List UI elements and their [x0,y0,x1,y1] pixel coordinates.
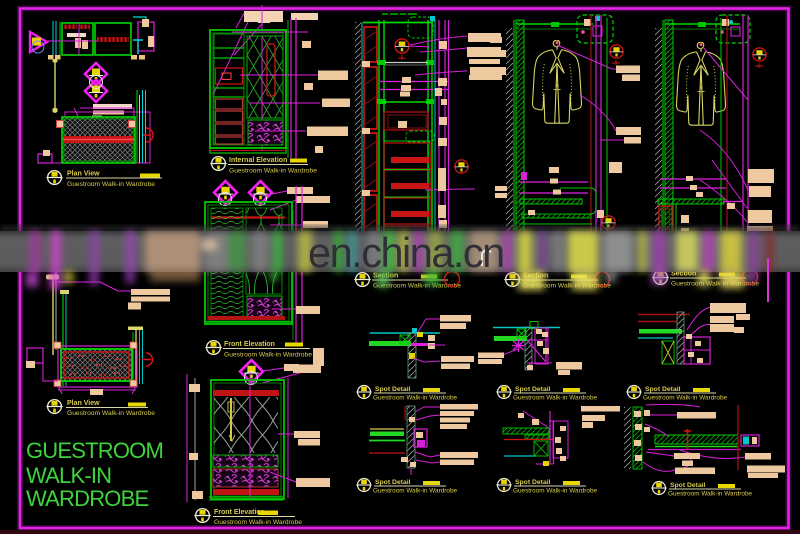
svg-text:GUESTROOM: GUESTROOM [26,438,163,463]
svg-text:Spot Detail: Spot Detail [515,386,551,393]
svg-text:WARDROBE: WARDROBE [26,486,148,511]
svg-text:Guestroom Walk-in Wardrobe: Guestroom Walk-in Wardrobe [214,519,302,526]
svg-text:en.china.cn: en.china.cn [308,229,504,276]
svg-text:Spot Detail: Spot Detail [375,479,411,486]
svg-text:Front Elevation: Front Elevation [214,509,265,516]
svg-text:Internal Elevation: Internal Elevation [229,157,287,164]
svg-text:Guestroom Walk-in Wardrobe: Guestroom Walk-in Wardrobe [668,491,752,498]
svg-text:Guestroom Walk-in Wardrobe: Guestroom Walk-in Wardrobe [224,352,312,359]
svg-text:Guestroom Walk-in Wardrobe: Guestroom Walk-in Wardrobe [67,181,155,188]
svg-text:Guestroom Walk-in Wardrobe: Guestroom Walk-in Wardrobe [373,488,457,495]
svg-text:Guestroom Walk-in Wardrobe: Guestroom Walk-in Wardrobe [513,395,597,402]
svg-text:Spot Detail: Spot Detail [375,386,411,393]
svg-text:Plan View: Plan View [67,400,100,407]
svg-text:Guestroom Walk-in Wardrobe: Guestroom Walk-in Wardrobe [373,395,457,402]
svg-text:Spot Detail: Spot Detail [515,479,551,486]
svg-text:Spot Detail: Spot Detail [670,482,706,489]
svg-text:Guestroom Walk-in Wardrobe: Guestroom Walk-in Wardrobe [67,410,155,417]
svg-text:Front Elevation: Front Elevation [224,341,275,348]
svg-text:Plan View: Plan View [67,171,100,178]
svg-text:WALK-IN: WALK-IN [26,463,111,488]
svg-text:Guestroom Walk-in Wardrobe: Guestroom Walk-in Wardrobe [229,168,317,175]
svg-text:Guestroom Walk-in Wardrobe: Guestroom Walk-in Wardrobe [513,488,597,495]
svg-text:Spot Detail: Spot Detail [645,386,681,393]
svg-text:Guestroom Walk-in Wardrobe: Guestroom Walk-in Wardrobe [643,395,727,402]
